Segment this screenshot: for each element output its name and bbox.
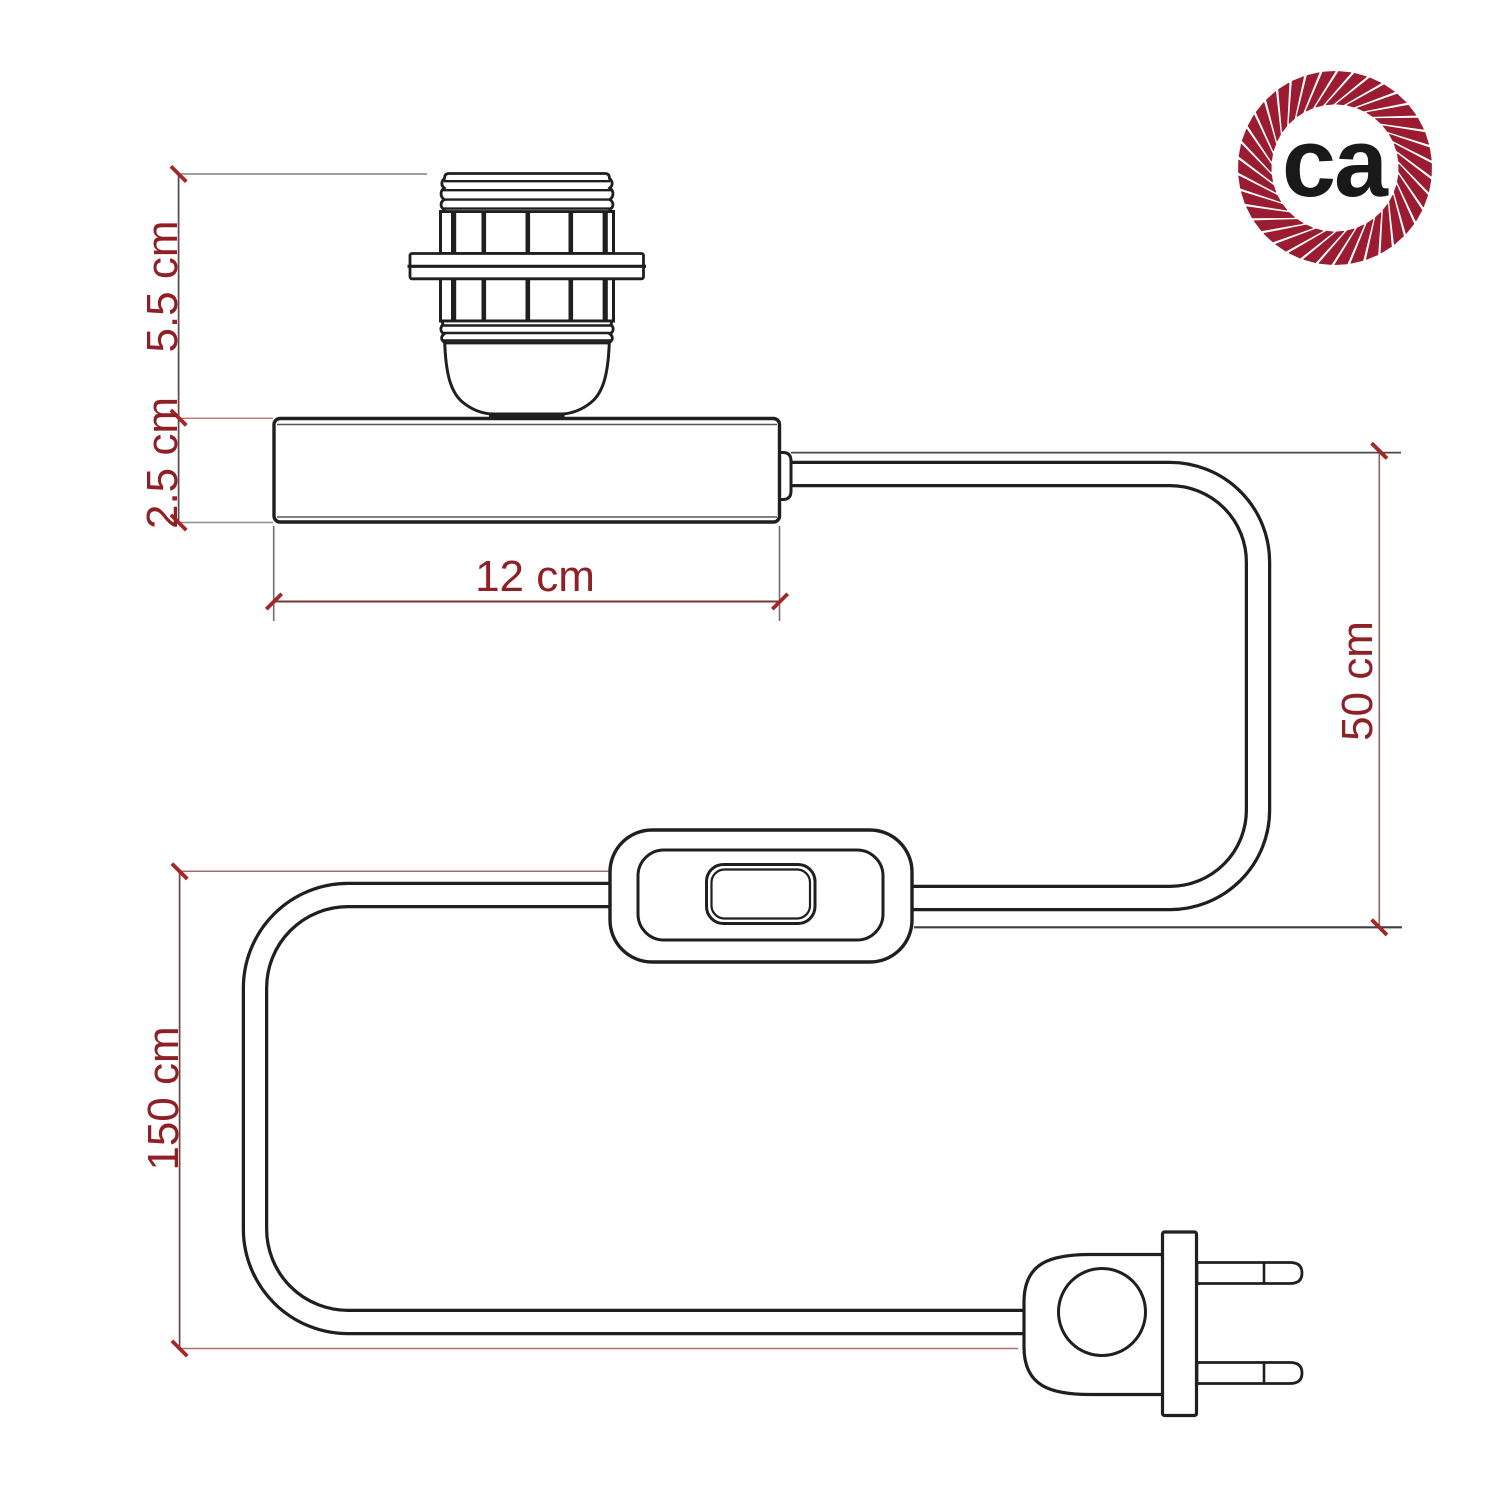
svg-text:2.5 cm: 2.5 cm [138, 397, 187, 529]
svg-text:5.5 cm: 5.5 cm [138, 220, 187, 352]
svg-text:50 cm: 50 cm [1333, 621, 1382, 741]
svg-text:150 cm: 150 cm [139, 1026, 188, 1170]
svg-text:ca: ca [1282, 108, 1389, 217]
svg-text:12 cm: 12 cm [475, 552, 595, 601]
